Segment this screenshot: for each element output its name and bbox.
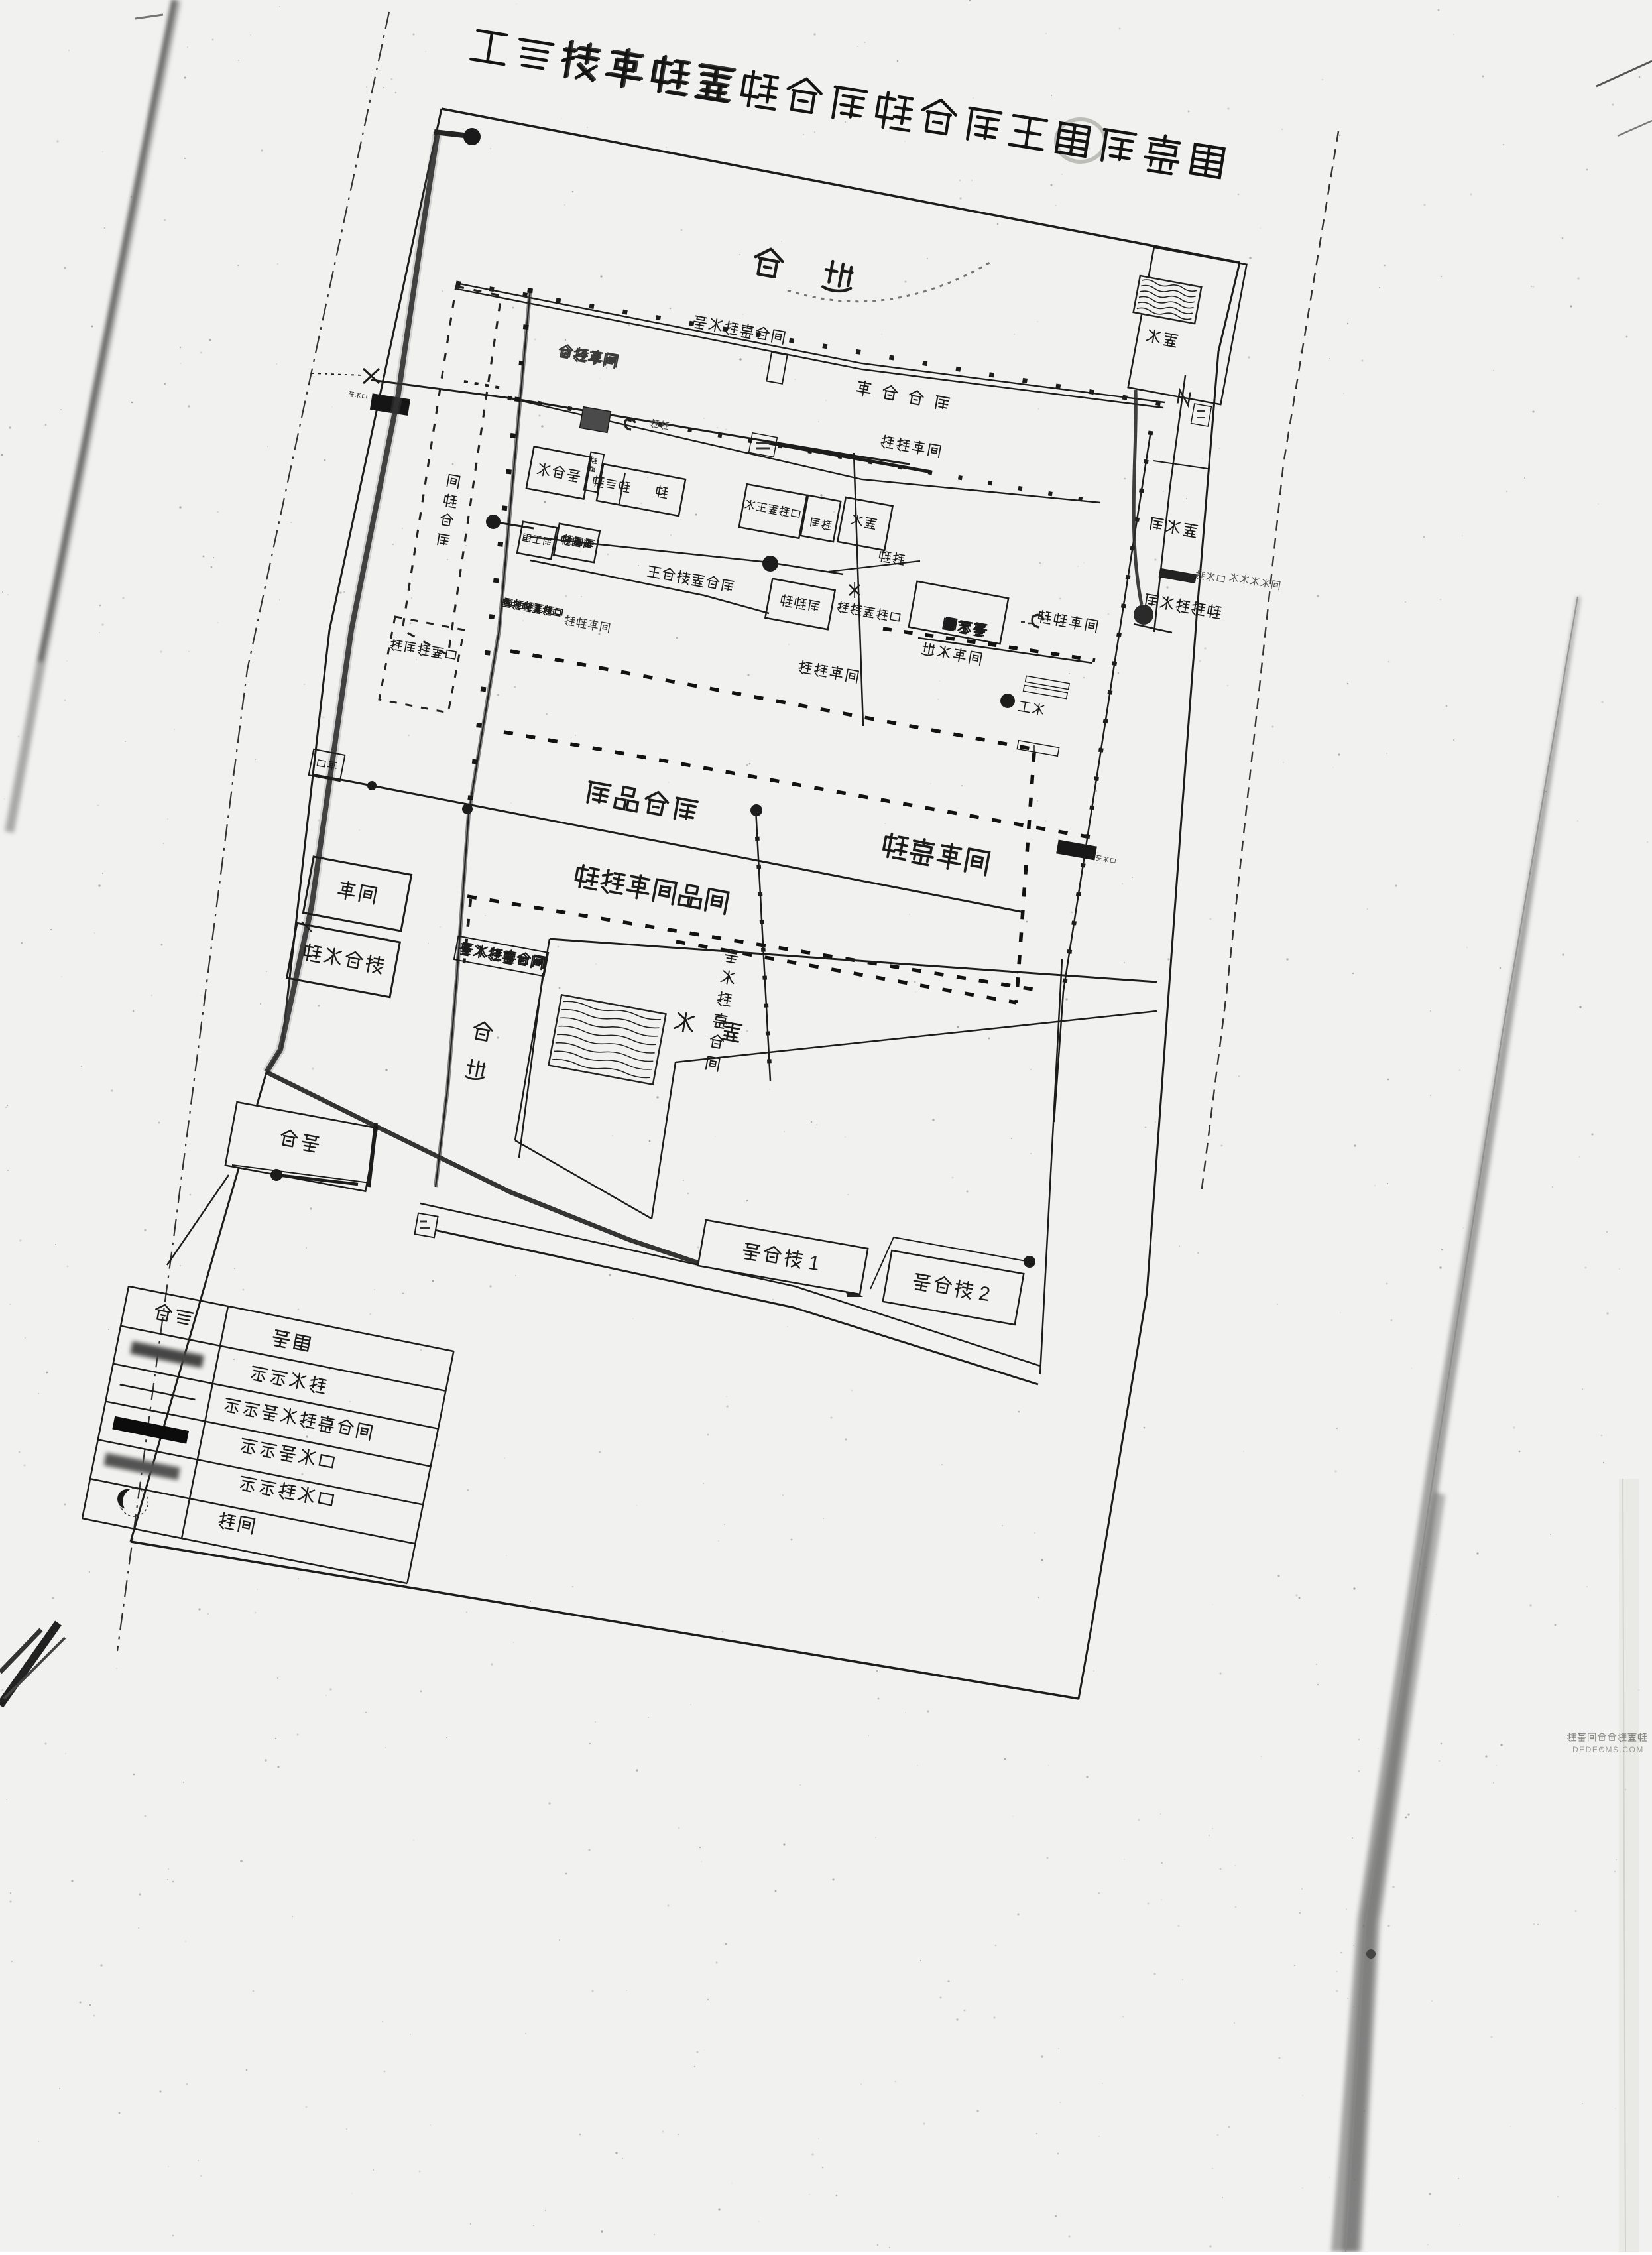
svg-text:DEDECMS.COM: DEDECMS.COM (1572, 1745, 1644, 1754)
